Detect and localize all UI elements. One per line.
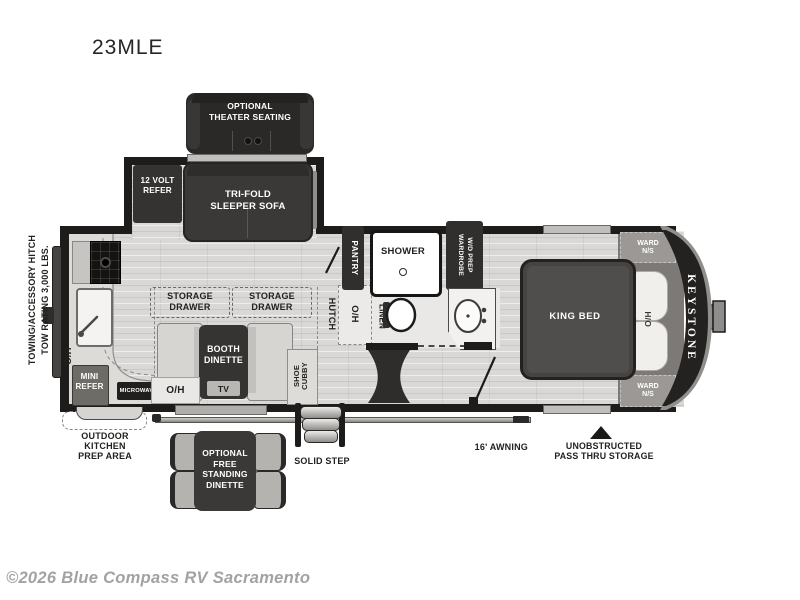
12v-refer-label: 12 VOLT REFER [133, 176, 182, 196]
bed-oh-label: O/H [643, 304, 655, 334]
bedroom-window-bottom [543, 405, 611, 414]
kingpin-neck [705, 305, 714, 329]
booth-bench-right-back [248, 327, 256, 393]
bath-vanity [448, 288, 496, 350]
kitchen-sink [76, 288, 113, 347]
trifold-sofa-label: TRI-FOLD SLEEPER SOFA [183, 189, 313, 212]
booth-oh-cabinet: O/H [151, 377, 200, 404]
theater-cupholder-right [254, 137, 262, 145]
stove-center-knob [100, 257, 111, 268]
wardrobe-wd-prep-label: W/D PREP WARDROBE [455, 224, 473, 286]
wardrobe-ns-top: WARD N/S [620, 232, 676, 263]
booth-slide-exterior-bar [175, 405, 267, 415]
awning-end-left [152, 414, 161, 422]
sofa-slide-window [187, 154, 307, 162]
theater-seam-left [232, 131, 233, 151]
dinette-chair-4 [254, 471, 286, 509]
sofa-slide-wall-left [124, 157, 132, 234]
bath-pocket-door-track [418, 345, 466, 347]
floorplan-diagram: 23MLE TOWING/ACCESSORY HITCH TOW RATING … [0, 0, 800, 600]
bedroom-window-top [543, 225, 611, 234]
bath-wall-right-segment [464, 342, 492, 350]
keystone-brand-label: KEYSTONE [683, 262, 697, 374]
sofa-slide-wall-right [316, 157, 324, 234]
free-dinette-label: OPTIONAL FREE STANDING DINETTE [194, 448, 256, 490]
booth-dinette-label: BOOTH DINETTE [199, 344, 248, 366]
king-bed-label: KING BED [520, 311, 630, 322]
shower-label: SHOWER [370, 246, 436, 257]
booth-oh-label: O/H [166, 385, 184, 396]
stove-counter-strip [72, 241, 92, 284]
theater-seating-label: OPTIONAL THEATER SEATING [190, 101, 310, 122]
storage-drawer-right-label: STORAGE DRAWER [232, 291, 312, 312]
awning-end-right [513, 416, 529, 423]
pantry-label: PANTRY [347, 230, 359, 286]
theater-seam-right [270, 131, 271, 151]
pass-thru-arrow [590, 426, 612, 439]
outdoor-kitchen-hatch [76, 407, 143, 420]
dinette-chair-3 [254, 433, 286, 471]
outdoor-kitchen-label: OUTDOOR KITCHEN PREP AREA [69, 431, 141, 461]
mini-refer-label: MINI REFER [72, 372, 107, 391]
entry-step-3 [304, 430, 338, 443]
storage-drawer-left-label: STORAGE DRAWER [150, 291, 230, 312]
sofa-back-band [187, 164, 309, 176]
shower-drain [399, 268, 407, 276]
pass-thru-label: UNOBSTRUCTED PASS THRU STORAGE [552, 441, 656, 461]
bath-wall-left-segment [366, 343, 418, 350]
floorplan-title: 23MLE [92, 36, 164, 60]
shoe-cubby-label: SHOE CUBBY [293, 351, 309, 401]
hutch-label: HUTCH [325, 291, 337, 337]
tv-label: TV [218, 384, 229, 394]
kingpin-box [713, 301, 725, 332]
solid-step-label: SOLID STEP [290, 456, 354, 466]
shower [370, 230, 442, 297]
awning-label: 16' AWNING [452, 442, 528, 452]
towing-rating-label: TOWING/ACCESSORY HITCH TOW RATING 3,000 … [26, 225, 52, 375]
wardrobe-ns-bottom: WARD N/S [620, 375, 676, 407]
theater-cupholder-left [244, 137, 252, 145]
hutch-oh-label: O/H [348, 299, 360, 329]
tv: TV [207, 381, 240, 396]
linen-label: LINEN [376, 299, 387, 335]
dealer-watermark: ©2026 Blue Compass RV Sacramento [6, 569, 310, 588]
